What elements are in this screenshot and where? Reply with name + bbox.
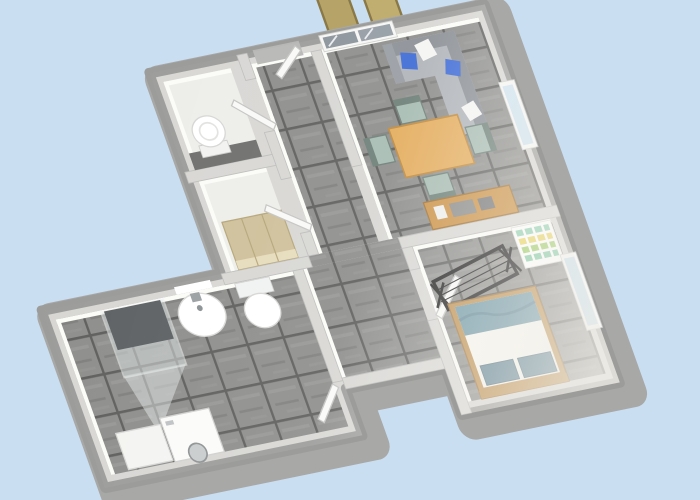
floor-plan-rendering xyxy=(0,0,700,500)
floor-plan-viewport xyxy=(0,0,700,500)
